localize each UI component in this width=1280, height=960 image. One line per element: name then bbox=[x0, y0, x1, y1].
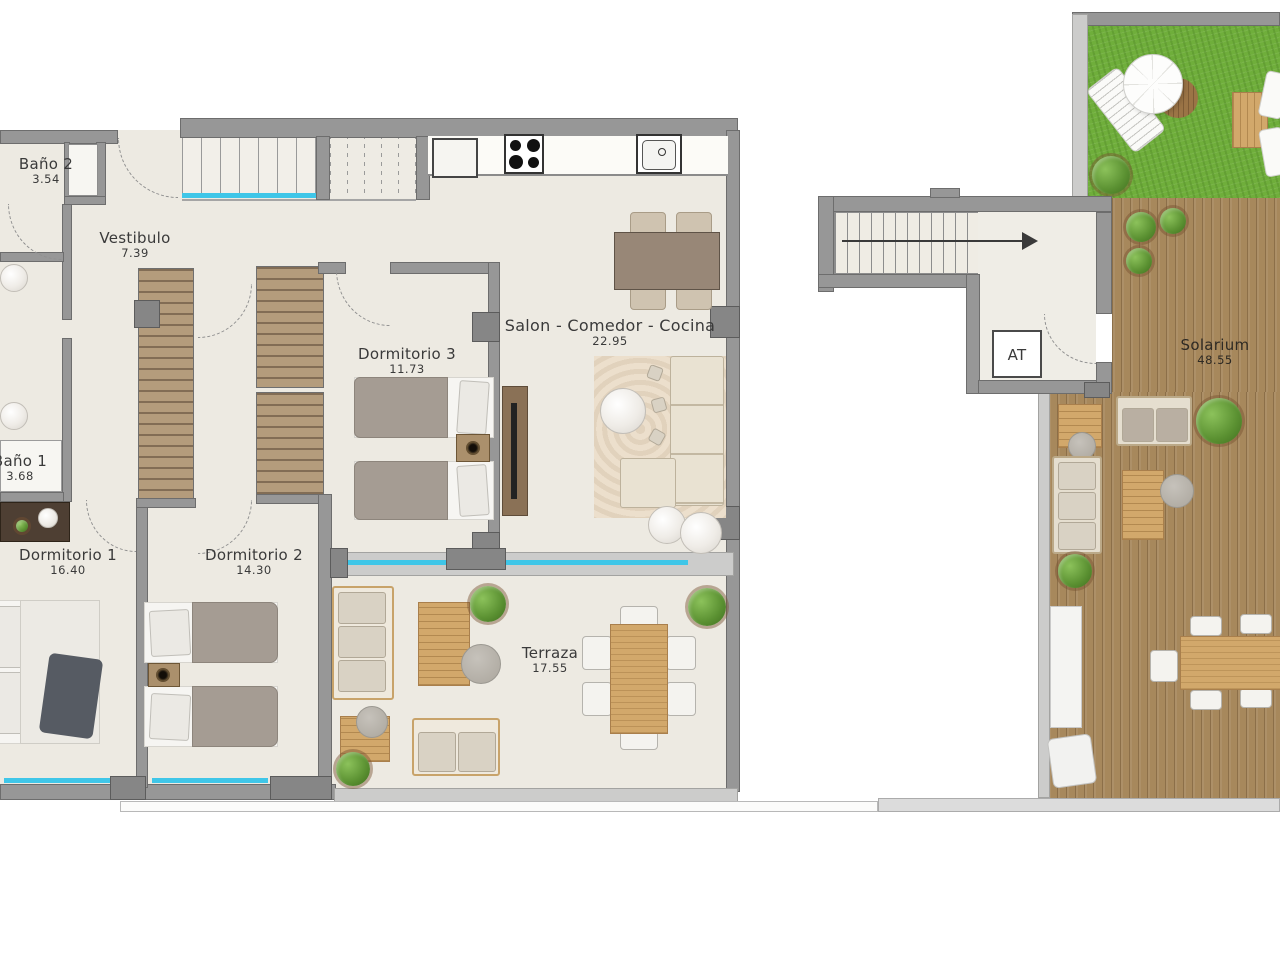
dorm3-label: Dormitorio 3 11.73 bbox=[348, 345, 466, 377]
stair-bottom-wall bbox=[818, 274, 980, 288]
salon-area: 22.95 bbox=[498, 335, 722, 349]
stair-top-wall bbox=[818, 196, 1112, 212]
bed-dorm2-1-pillow bbox=[149, 609, 191, 657]
dorm1-window bbox=[4, 778, 110, 783]
terraza-loveseat bbox=[412, 718, 500, 776]
solarium-dining-table bbox=[1180, 636, 1280, 690]
solarium-chair bbox=[1150, 650, 1178, 682]
nightstand-knob bbox=[156, 668, 170, 682]
solarium-armchair bbox=[1047, 733, 1098, 789]
wall-bath-vert-upper bbox=[62, 204, 72, 320]
dorm2-area: 14.30 bbox=[196, 564, 312, 578]
bano1-name: Baño 1 bbox=[0, 452, 47, 470]
at-room: AT bbox=[992, 330, 1042, 378]
bano2-area: 3.54 bbox=[0, 173, 98, 187]
terraza-plant-3 bbox=[336, 752, 370, 786]
garden-top-wall bbox=[1072, 12, 1280, 26]
solarium-chair bbox=[1240, 688, 1272, 708]
solarium-plant-5 bbox=[1058, 554, 1092, 588]
dorm2-window bbox=[152, 778, 268, 783]
vanity-counter bbox=[0, 502, 70, 542]
solarium-plant-1 bbox=[1126, 212, 1156, 242]
terraza-coffee-table bbox=[418, 602, 470, 686]
dorm2-name: Dormitorio 2 bbox=[205, 546, 303, 564]
terraza-chair bbox=[582, 682, 612, 716]
terraza-label: Terraza 17.55 bbox=[512, 644, 588, 676]
bed-dorm3-1-pillow bbox=[456, 380, 490, 435]
solarium-plant-4 bbox=[1196, 398, 1242, 444]
solarium-round-rug bbox=[1160, 474, 1194, 508]
pillar-terraza-left bbox=[330, 548, 348, 578]
vestibulo-name: Vestibulo bbox=[99, 229, 170, 247]
solarium-left-rail bbox=[1038, 392, 1050, 798]
landing-right-wall-upper bbox=[1096, 212, 1112, 314]
wall-bath1-bottom bbox=[0, 492, 64, 502]
fridge bbox=[432, 138, 478, 178]
pouf-2 bbox=[680, 512, 722, 554]
burner bbox=[528, 157, 539, 168]
terraza-area: 17.55 bbox=[512, 662, 588, 676]
parasol bbox=[1123, 54, 1183, 114]
wall-pillar-window bbox=[316, 136, 330, 200]
nightstand-knob bbox=[466, 441, 480, 455]
terraza-sofa-3 bbox=[332, 586, 394, 700]
vestibulo-window-glazing bbox=[182, 136, 316, 198]
washbasin-2 bbox=[0, 402, 28, 430]
terraza-small-round bbox=[356, 706, 388, 738]
bed-dorm3-1-duvet bbox=[354, 377, 448, 438]
bano2-name: Baño 2 bbox=[19, 155, 73, 173]
bed-dorm1-throw bbox=[39, 653, 104, 740]
solarium-sofa-2 bbox=[1116, 396, 1192, 446]
kitchen-sink bbox=[636, 134, 682, 174]
railing-bottom bbox=[878, 798, 1280, 812]
stair-top-notch bbox=[930, 188, 960, 198]
vanity-plant bbox=[16, 520, 28, 532]
terraza-name: Terraza bbox=[522, 644, 578, 662]
faucet bbox=[658, 148, 666, 156]
window-sill-line bbox=[182, 199, 416, 201]
pillar-bottom-b bbox=[270, 776, 332, 800]
landing-dark-block bbox=[1084, 382, 1110, 398]
pillar-bottom-a bbox=[110, 776, 146, 800]
wall-dorm2-terraza bbox=[318, 494, 332, 790]
solarium-plant-2 bbox=[1160, 208, 1186, 234]
terraza-round-table bbox=[461, 644, 501, 684]
wardrobe-2-upper bbox=[256, 266, 324, 388]
salon-name: Salon - Comedor - Cocina bbox=[505, 316, 716, 335]
tv-screen bbox=[511, 403, 517, 499]
terraza-window bbox=[346, 560, 688, 565]
solarium-chair bbox=[1190, 690, 1222, 710]
wall-corridor-1 bbox=[136, 498, 196, 508]
vestibulo-area: 7.39 bbox=[80, 247, 190, 261]
dining-table bbox=[614, 232, 720, 290]
dorm1-area: 16.40 bbox=[12, 564, 124, 578]
solarium-lounger-pad bbox=[1050, 606, 1082, 728]
bano2-label: Baño 2 3.54 bbox=[0, 155, 98, 187]
vanity-basin bbox=[38, 508, 58, 528]
vestibulo-window-sill bbox=[182, 193, 316, 198]
wall-bottom-terraza bbox=[334, 788, 738, 802]
garden-plant bbox=[1092, 156, 1130, 194]
burner bbox=[527, 139, 540, 152]
dorm2-label: Dormitorio 2 14.30 bbox=[196, 546, 312, 578]
bed-dorm2-2-duvet bbox=[192, 686, 278, 747]
stairs-arrow bbox=[1022, 232, 1038, 250]
wall-dorm3-top-b bbox=[390, 262, 500, 274]
bed-dorm2-2-pillow bbox=[149, 693, 191, 741]
washbasin-1 bbox=[0, 264, 28, 292]
solarium-plant-3 bbox=[1126, 248, 1152, 274]
solarium-coffee-table bbox=[1122, 470, 1164, 540]
salon-chaise bbox=[620, 458, 676, 508]
coffee-table-round bbox=[600, 388, 646, 434]
terraza-chair bbox=[666, 682, 696, 716]
bano1-area: 3.68 bbox=[0, 470, 60, 484]
dorm1-label: Dormitorio 1 16.40 bbox=[12, 546, 124, 578]
terraza-chair bbox=[666, 636, 696, 670]
salon-label: Salon - Comedor - Cocina 22.95 bbox=[498, 316, 722, 349]
bed-dorm3-2-duvet bbox=[354, 461, 448, 520]
solarium-name: Solarium bbox=[1181, 336, 1250, 354]
wardrobe-1-safe bbox=[134, 300, 160, 328]
solarium-area: 48.55 bbox=[1172, 354, 1258, 368]
solarium-label: Solarium 48.55 bbox=[1172, 336, 1258, 368]
wardrobe-2-lower bbox=[256, 392, 324, 502]
dorm1-name: Dormitorio 1 bbox=[19, 546, 117, 564]
bed-dorm3-2-pillow bbox=[456, 464, 489, 517]
solarium-chair bbox=[1190, 616, 1222, 636]
stairs-direction-line bbox=[842, 240, 1028, 242]
dashed-void-section bbox=[330, 136, 416, 198]
terraza-plant-1 bbox=[470, 586, 506, 622]
bed-dorm2-1-duvet bbox=[192, 602, 278, 663]
salon-sofa bbox=[670, 356, 724, 506]
stove bbox=[504, 134, 544, 174]
terraza-dining-table bbox=[610, 624, 668, 734]
solarium-chair bbox=[1240, 614, 1272, 634]
garden-left-wall bbox=[1072, 14, 1088, 198]
tv-cabinet bbox=[502, 386, 528, 516]
wall-corridor-2 bbox=[256, 494, 326, 504]
curb-left bbox=[120, 801, 878, 812]
burner bbox=[509, 155, 523, 169]
terraza-plant-2 bbox=[688, 588, 726, 626]
wall-bath-vert-lower bbox=[62, 338, 72, 502]
floor-plan-canvas: AT Baño 2 3.54 Vestibulo 7.39 Dormitorio… bbox=[0, 0, 1280, 960]
pillar-dorm3-a bbox=[472, 312, 500, 342]
terraza-wall-block bbox=[446, 548, 506, 570]
wall-right bbox=[726, 130, 740, 792]
burner bbox=[510, 140, 521, 151]
at-room-label: AT bbox=[994, 346, 1040, 364]
landing-left-wall bbox=[966, 274, 980, 394]
dorm3-area: 11.73 bbox=[348, 363, 466, 377]
dorm3-name: Dormitorio 3 bbox=[358, 345, 456, 363]
stairs bbox=[834, 212, 990, 274]
vestibulo-label: Vestibulo 7.39 bbox=[80, 229, 190, 261]
solarium-sofa-3 bbox=[1052, 456, 1102, 554]
bano1-label: Baño 1 3.68 bbox=[0, 452, 60, 484]
